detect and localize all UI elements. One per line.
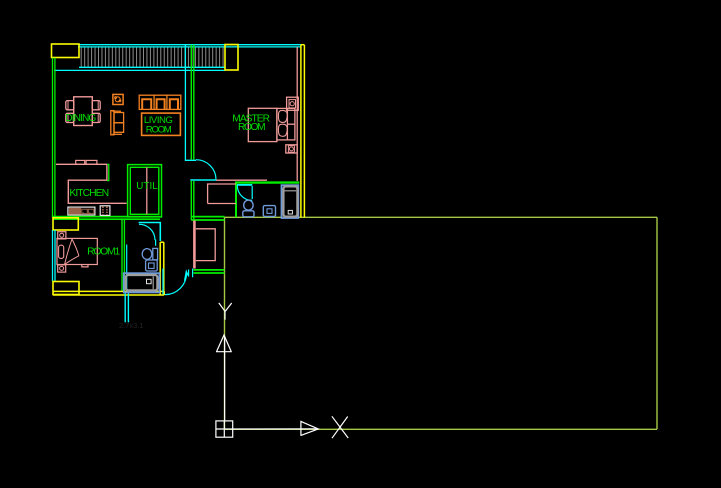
- svg-text:2.7x3.1: 2.7x3.1: [119, 321, 144, 330]
- svg-text:DINING: DINING: [65, 113, 96, 124]
- svg-text:KITCHEN: KITCHEN: [69, 188, 109, 199]
- svg-text:UTIL: UTIL: [136, 181, 158, 192]
- svg-text:ROOM: ROOM: [146, 125, 172, 136]
- svg-text:ROOM1: ROOM1: [87, 246, 120, 257]
- svg-text:ROOM: ROOM: [238, 122, 266, 133]
